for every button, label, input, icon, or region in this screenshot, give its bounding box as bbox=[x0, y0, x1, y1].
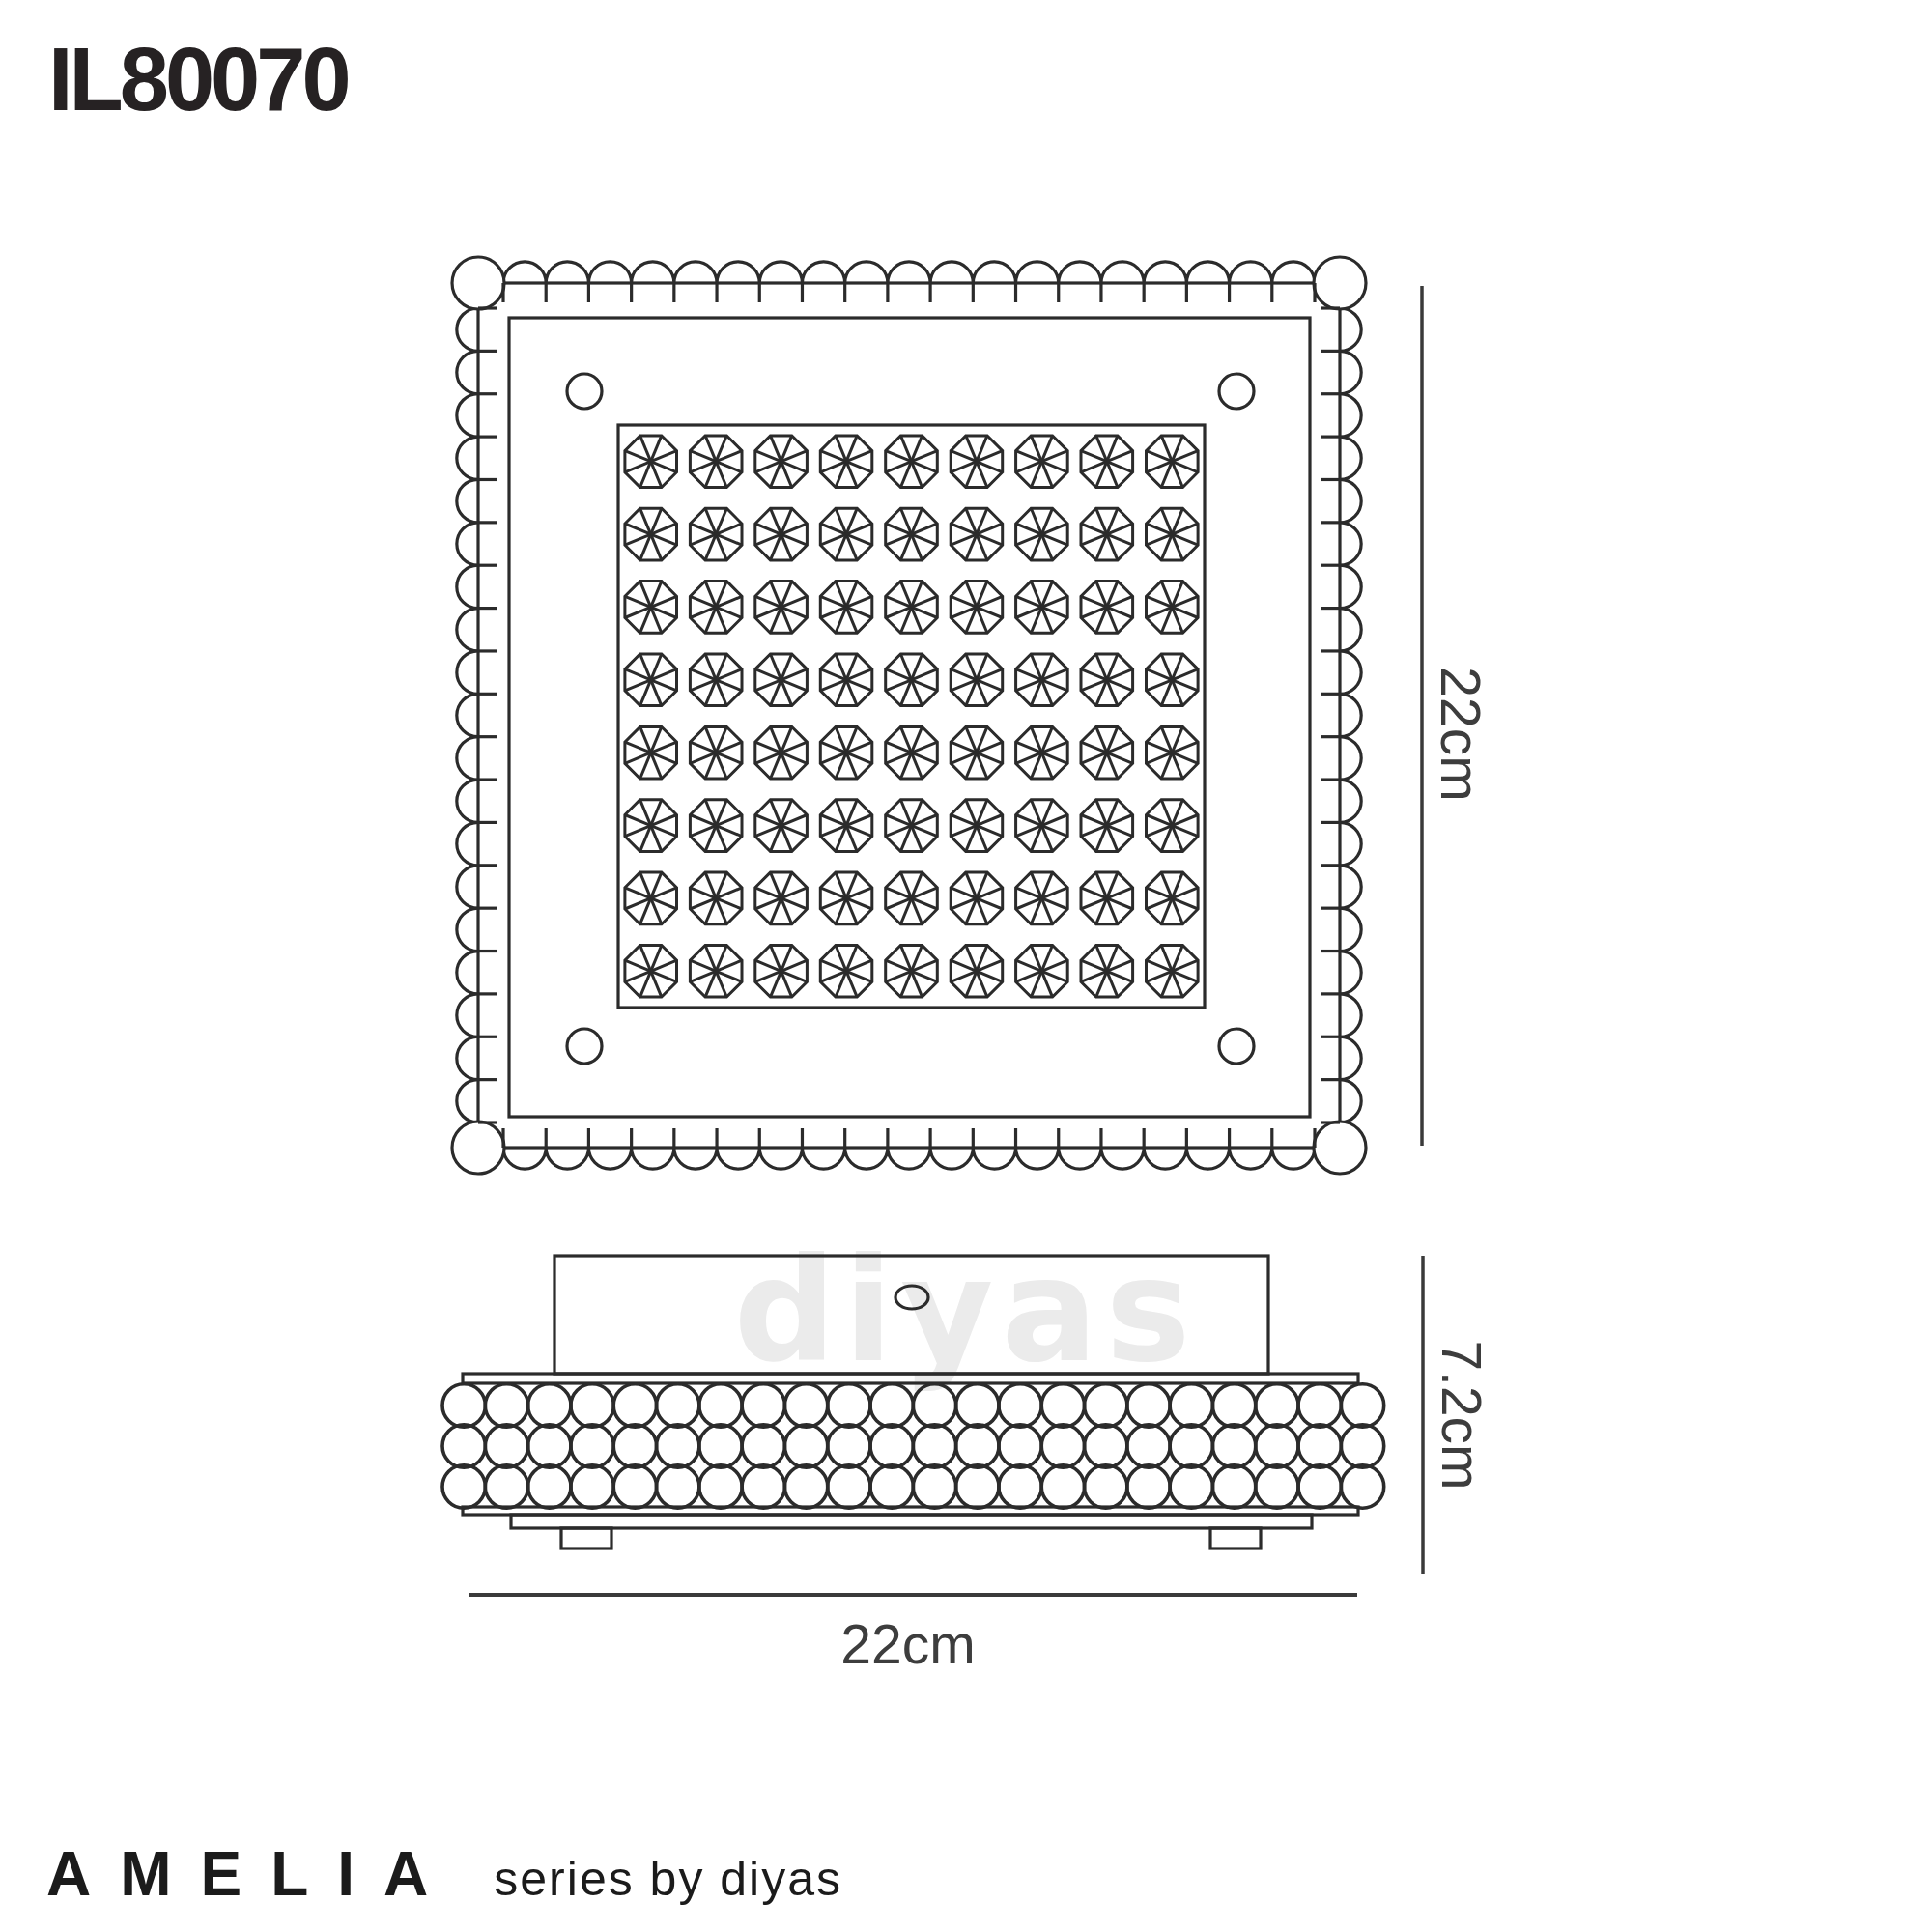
crystal-bead bbox=[913, 1465, 955, 1508]
crystal-octagon bbox=[1081, 582, 1133, 634]
crystal-bead bbox=[1298, 1465, 1341, 1508]
crystal-octagon bbox=[755, 872, 808, 924]
crystal-octagon bbox=[625, 726, 677, 779]
crystal-bead bbox=[699, 1465, 742, 1508]
crystal-octagon bbox=[1016, 726, 1068, 779]
crystal-bead bbox=[999, 1465, 1041, 1508]
crystal-octagon bbox=[1147, 582, 1199, 634]
dimension-label-side-width: 22cm bbox=[840, 1613, 975, 1675]
diagram-page: IL80070 diyas 22cm bbox=[0, 0, 1932, 1932]
crystal-bead bbox=[1127, 1425, 1170, 1467]
crystal-bead bbox=[828, 1425, 870, 1467]
scallop-arc-row bbox=[503, 262, 1315, 283]
crystal-octagon bbox=[951, 654, 1002, 706]
crystal-bead bbox=[1341, 1425, 1383, 1467]
crystal-octagon bbox=[1081, 946, 1133, 998]
crystal-octagon bbox=[820, 946, 872, 998]
crystal-octagon bbox=[820, 800, 872, 852]
crystal-octagon bbox=[1081, 726, 1133, 779]
crystal-bead bbox=[1298, 1425, 1341, 1467]
crystal-octagon bbox=[625, 582, 677, 634]
crystal-bead bbox=[485, 1384, 527, 1427]
crystal-bead bbox=[1212, 1465, 1255, 1508]
crystal-octagon bbox=[1016, 654, 1068, 706]
crystal-bead-band bbox=[442, 1384, 1384, 1508]
crystal-octagon bbox=[951, 726, 1002, 779]
crystal-bead bbox=[442, 1384, 485, 1427]
base-step bbox=[511, 1515, 1312, 1528]
crystal-bead bbox=[1127, 1465, 1170, 1508]
crystal-octagon bbox=[1081, 872, 1133, 924]
crystal-bead bbox=[613, 1384, 656, 1427]
scallop-arc-row bbox=[457, 308, 478, 1122]
crystal-bead bbox=[1170, 1425, 1212, 1467]
crystal-octagon bbox=[755, 654, 808, 706]
crystal-bead bbox=[657, 1465, 699, 1508]
crystal-bead bbox=[1298, 1384, 1341, 1427]
crystal-octagon bbox=[1016, 508, 1068, 560]
screw-hole bbox=[567, 1029, 602, 1064]
crystal-bead bbox=[1041, 1465, 1084, 1508]
crystal-bead bbox=[613, 1425, 656, 1467]
crystal-octagon bbox=[755, 726, 808, 779]
crystal-octagon bbox=[690, 436, 742, 488]
scallop-arc-row bbox=[503, 1148, 1315, 1169]
crystal-octagon bbox=[820, 508, 872, 560]
crystal-bead bbox=[699, 1384, 742, 1427]
crystal-bead bbox=[657, 1384, 699, 1427]
corner-crystal-button bbox=[452, 257, 504, 309]
fixture-outer-frame bbox=[478, 283, 1340, 1148]
crystal-octagon bbox=[1016, 436, 1068, 488]
crystal-bead bbox=[699, 1425, 742, 1467]
crystal-bead bbox=[442, 1425, 485, 1467]
crystal-octagon bbox=[690, 654, 742, 706]
screw-hole bbox=[1219, 1029, 1254, 1064]
crystal-octagon bbox=[755, 436, 808, 488]
crystal-octagon bbox=[951, 800, 1002, 852]
dimension-label-side-height: 7.2cm bbox=[1431, 1340, 1492, 1490]
crystal-bead bbox=[828, 1465, 870, 1508]
crystal-octagon bbox=[951, 508, 1002, 560]
crystal-octagon bbox=[886, 582, 938, 634]
crystal-octagon bbox=[690, 946, 742, 998]
crystal-octagon bbox=[886, 726, 938, 779]
corner-crystal-buttons bbox=[452, 257, 1366, 1174]
series-tagline: series by diyas bbox=[494, 1855, 842, 1903]
crystal-bead bbox=[442, 1465, 485, 1508]
crystal-octagon bbox=[625, 508, 677, 560]
crystal-octagon bbox=[1147, 726, 1199, 779]
corner-crystal-button bbox=[1314, 257, 1366, 309]
crystal-bead bbox=[528, 1425, 571, 1467]
crystal-octagon bbox=[820, 872, 872, 924]
crystal-bead bbox=[485, 1425, 527, 1467]
top-view bbox=[452, 257, 1366, 1174]
corner-crystal-button bbox=[1314, 1122, 1366, 1174]
crystal-bead bbox=[571, 1465, 613, 1508]
crystal-octagon bbox=[690, 800, 742, 852]
crystal-bead bbox=[1341, 1465, 1383, 1508]
crystal-octagon bbox=[755, 508, 808, 560]
crystal-octagon bbox=[820, 436, 872, 488]
crystal-octagon bbox=[886, 872, 938, 924]
crystal-grid bbox=[625, 436, 1198, 997]
crystal-octagon bbox=[1016, 872, 1068, 924]
scallop-arc-row bbox=[1340, 308, 1361, 1122]
crystal-octagon bbox=[1147, 436, 1199, 488]
footer: AMELIA series by diyas bbox=[46, 1843, 842, 1905]
crystal-octagon bbox=[690, 726, 742, 779]
crystal-octagon bbox=[886, 436, 938, 488]
crystal-octagon bbox=[690, 582, 742, 634]
crystal-bead bbox=[1256, 1384, 1298, 1427]
crystal-bead bbox=[956, 1465, 999, 1508]
crystal-bead bbox=[571, 1384, 613, 1427]
crystal-octagon bbox=[886, 654, 938, 706]
crystal-bead bbox=[657, 1425, 699, 1467]
crystal-octagon bbox=[1081, 654, 1133, 706]
crystal-octagon bbox=[1147, 946, 1199, 998]
crystal-octagon bbox=[1147, 654, 1199, 706]
crystal-octagon bbox=[951, 946, 1002, 998]
crystal-bead bbox=[1170, 1465, 1212, 1508]
crystal-octagon bbox=[755, 946, 808, 998]
crystal-octagon bbox=[625, 654, 677, 706]
crystal-bead bbox=[784, 1465, 827, 1508]
crystal-bead bbox=[528, 1465, 571, 1508]
crystal-octagon bbox=[625, 436, 677, 488]
crystal-octagon bbox=[1081, 508, 1133, 560]
crystal-octagon bbox=[1081, 800, 1133, 852]
crystal-bead bbox=[913, 1425, 955, 1467]
crystal-bead bbox=[613, 1465, 656, 1508]
crystal-octagon bbox=[625, 872, 677, 924]
crystal-octagon bbox=[1081, 436, 1133, 488]
top-view-dimension: 22cm bbox=[1422, 286, 1492, 1146]
scallop-tick-marks bbox=[478, 283, 1340, 1148]
crystal-octagon bbox=[820, 582, 872, 634]
crystal-bead bbox=[999, 1425, 1041, 1467]
dimension-label-top-view-height: 22cm bbox=[1430, 667, 1492, 801]
crystal-octagon bbox=[886, 508, 938, 560]
crystal-octagon bbox=[1147, 508, 1199, 560]
crystal-octagon bbox=[1016, 800, 1068, 852]
crystal-octagon bbox=[951, 582, 1002, 634]
crystal-bead bbox=[956, 1425, 999, 1467]
series-name: AMELIA bbox=[46, 1843, 457, 1905]
fixture-foot-left bbox=[561, 1528, 611, 1548]
crystal-octagon bbox=[820, 654, 872, 706]
crystal-octagon bbox=[1147, 800, 1199, 852]
crystal-octagon bbox=[820, 726, 872, 779]
crystal-bead bbox=[1085, 1465, 1127, 1508]
technical-drawing: diyas 22cm bbox=[0, 0, 1932, 1932]
crystal-octagon bbox=[951, 436, 1002, 488]
crystal-octagon bbox=[690, 508, 742, 560]
crystal-octagon bbox=[625, 800, 677, 852]
crystal-octagon bbox=[755, 800, 808, 852]
corner-crystal-button bbox=[452, 1122, 504, 1174]
crystal-bead bbox=[1212, 1384, 1255, 1427]
diyas-watermark: diyas bbox=[733, 1228, 1198, 1394]
crystal-octagon bbox=[1147, 872, 1199, 924]
crystal-bead bbox=[870, 1465, 913, 1508]
crystal-octagon bbox=[755, 582, 808, 634]
crystal-bead bbox=[1256, 1465, 1298, 1508]
crystal-bead bbox=[1212, 1425, 1255, 1467]
screw-hole bbox=[567, 374, 602, 409]
screw-hole bbox=[1219, 374, 1254, 409]
crystal-bead bbox=[485, 1465, 527, 1508]
crystal-octagon bbox=[1016, 946, 1068, 998]
fixture-foot-right bbox=[1210, 1528, 1261, 1548]
crystal-octagon bbox=[1016, 582, 1068, 634]
crystal-bead bbox=[784, 1425, 827, 1467]
crystal-octagon bbox=[625, 946, 677, 998]
crystal-bead bbox=[1085, 1425, 1127, 1467]
crystal-bead bbox=[1341, 1384, 1383, 1427]
crystal-bead bbox=[528, 1384, 571, 1427]
crystal-bead bbox=[870, 1425, 913, 1467]
crystal-bead bbox=[1256, 1425, 1298, 1467]
crystal-bead bbox=[571, 1425, 613, 1467]
crystal-octagon bbox=[690, 872, 742, 924]
crystal-bead bbox=[742, 1425, 784, 1467]
crystal-octagon bbox=[886, 946, 938, 998]
crystal-octagon bbox=[951, 872, 1002, 924]
crystal-bead bbox=[1041, 1425, 1084, 1467]
crystal-octagon bbox=[886, 800, 938, 852]
crystal-bead bbox=[742, 1465, 784, 1508]
